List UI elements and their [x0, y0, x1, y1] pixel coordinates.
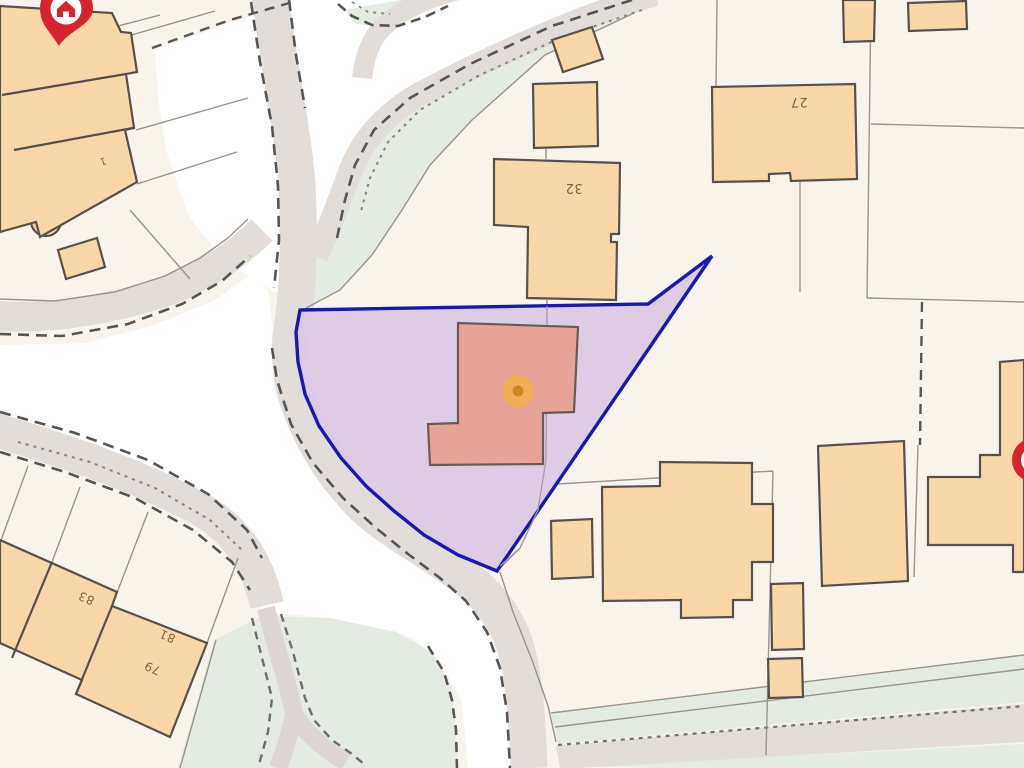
building-small-top-1	[843, 0, 875, 42]
building-small-top-2	[908, 1, 967, 31]
building-label-32: 32	[565, 180, 583, 195]
map-canvas[interactable]: 1 32 27 83 81 79	[0, 0, 1024, 768]
building-small-rect-2	[768, 658, 803, 698]
building-above-32	[533, 82, 598, 148]
building-tilted-rect	[818, 441, 908, 586]
building-small-rect-1	[771, 583, 804, 650]
building-label-27: 27	[790, 94, 808, 110]
map-svg: 1 32 27 83 81 79	[0, 0, 1024, 768]
parcel-line	[716, 0, 717, 86]
building-27	[712, 84, 857, 182]
building-small-square-mid	[551, 519, 593, 579]
property-center-dot	[513, 386, 524, 397]
